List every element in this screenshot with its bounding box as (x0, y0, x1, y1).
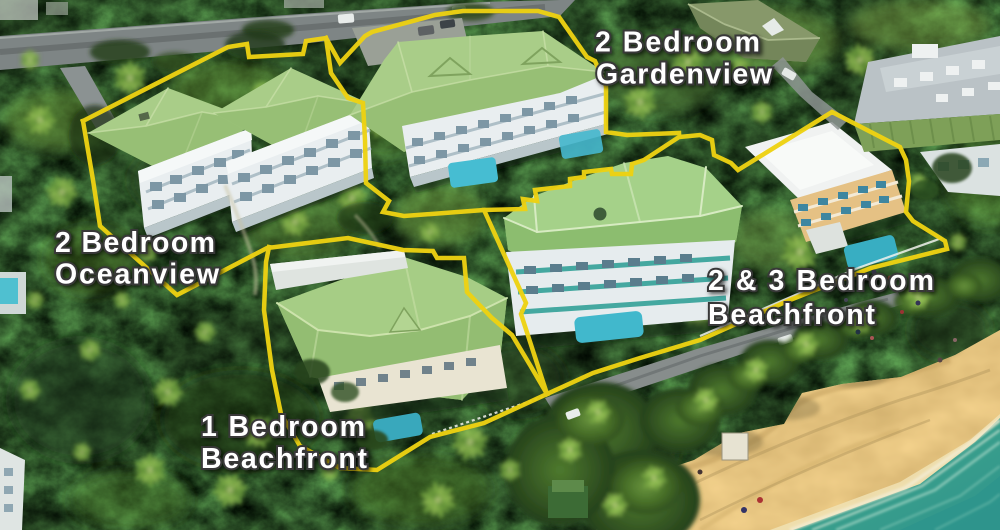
svg-text:Beachfront: Beachfront (708, 299, 876, 331)
svg-text:Gardenview: Gardenview (596, 59, 773, 91)
svg-text:2 Bedroom: 2 Bedroom (55, 227, 215, 259)
svg-text:2 Bedroom: 2 Bedroom (595, 27, 760, 59)
svg-text:Beachfront: Beachfront (201, 443, 368, 475)
svg-text:2 & 3 Bedroom: 2 & 3 Bedroom (708, 265, 934, 297)
svg-text:1 Bedroom: 1 Bedroom (201, 411, 365, 443)
